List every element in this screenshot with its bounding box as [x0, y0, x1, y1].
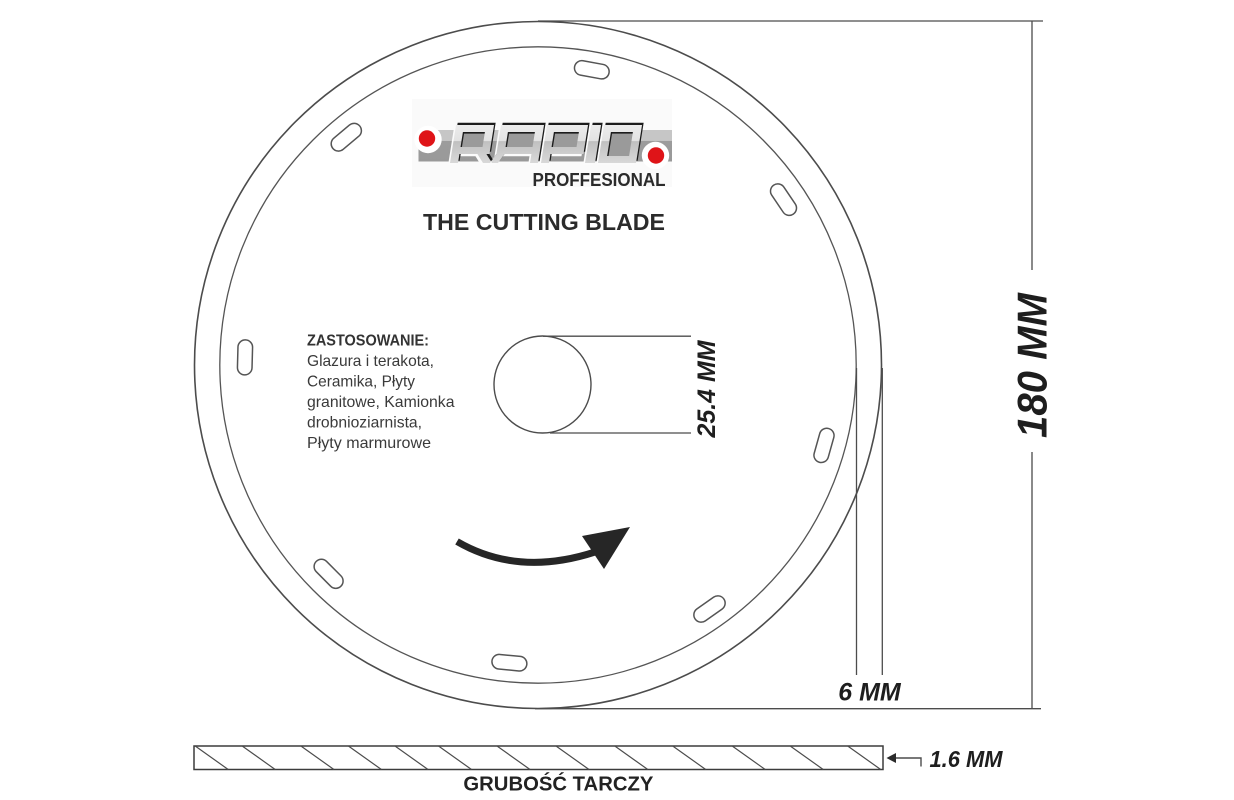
svg-text:Glazura i terakota,: Glazura i terakota,: [307, 353, 434, 370]
svg-text:ZASTOSOWANIE:: ZASTOSOWANIE:: [307, 333, 429, 350]
svg-text:Ceramika, Płyty: Ceramika, Płyty: [307, 374, 415, 391]
svg-text:granitowe, Kamionka: granitowe, Kamionka: [307, 394, 455, 411]
svg-text:6 MM: 6 MM: [838, 679, 902, 707]
svg-text:180 MM: 180 MM: [1009, 292, 1056, 438]
svg-text:1.6 MM: 1.6 MM: [930, 746, 1004, 772]
svg-text:GRUBOŚĆ TARCZY: GRUBOŚĆ TARCZY: [463, 772, 654, 796]
svg-text:THE CUTTING BLADE: THE CUTTING BLADE: [423, 209, 665, 235]
svg-text:drobnioziarnista,: drobnioziarnista,: [307, 415, 422, 432]
svg-text:Płyty marmurowe: Płyty marmurowe: [307, 435, 431, 452]
svg-text:25.4 MM: 25.4 MM: [693, 339, 721, 438]
svg-text:PROFFESIONAL: PROFFESIONAL: [533, 170, 666, 190]
